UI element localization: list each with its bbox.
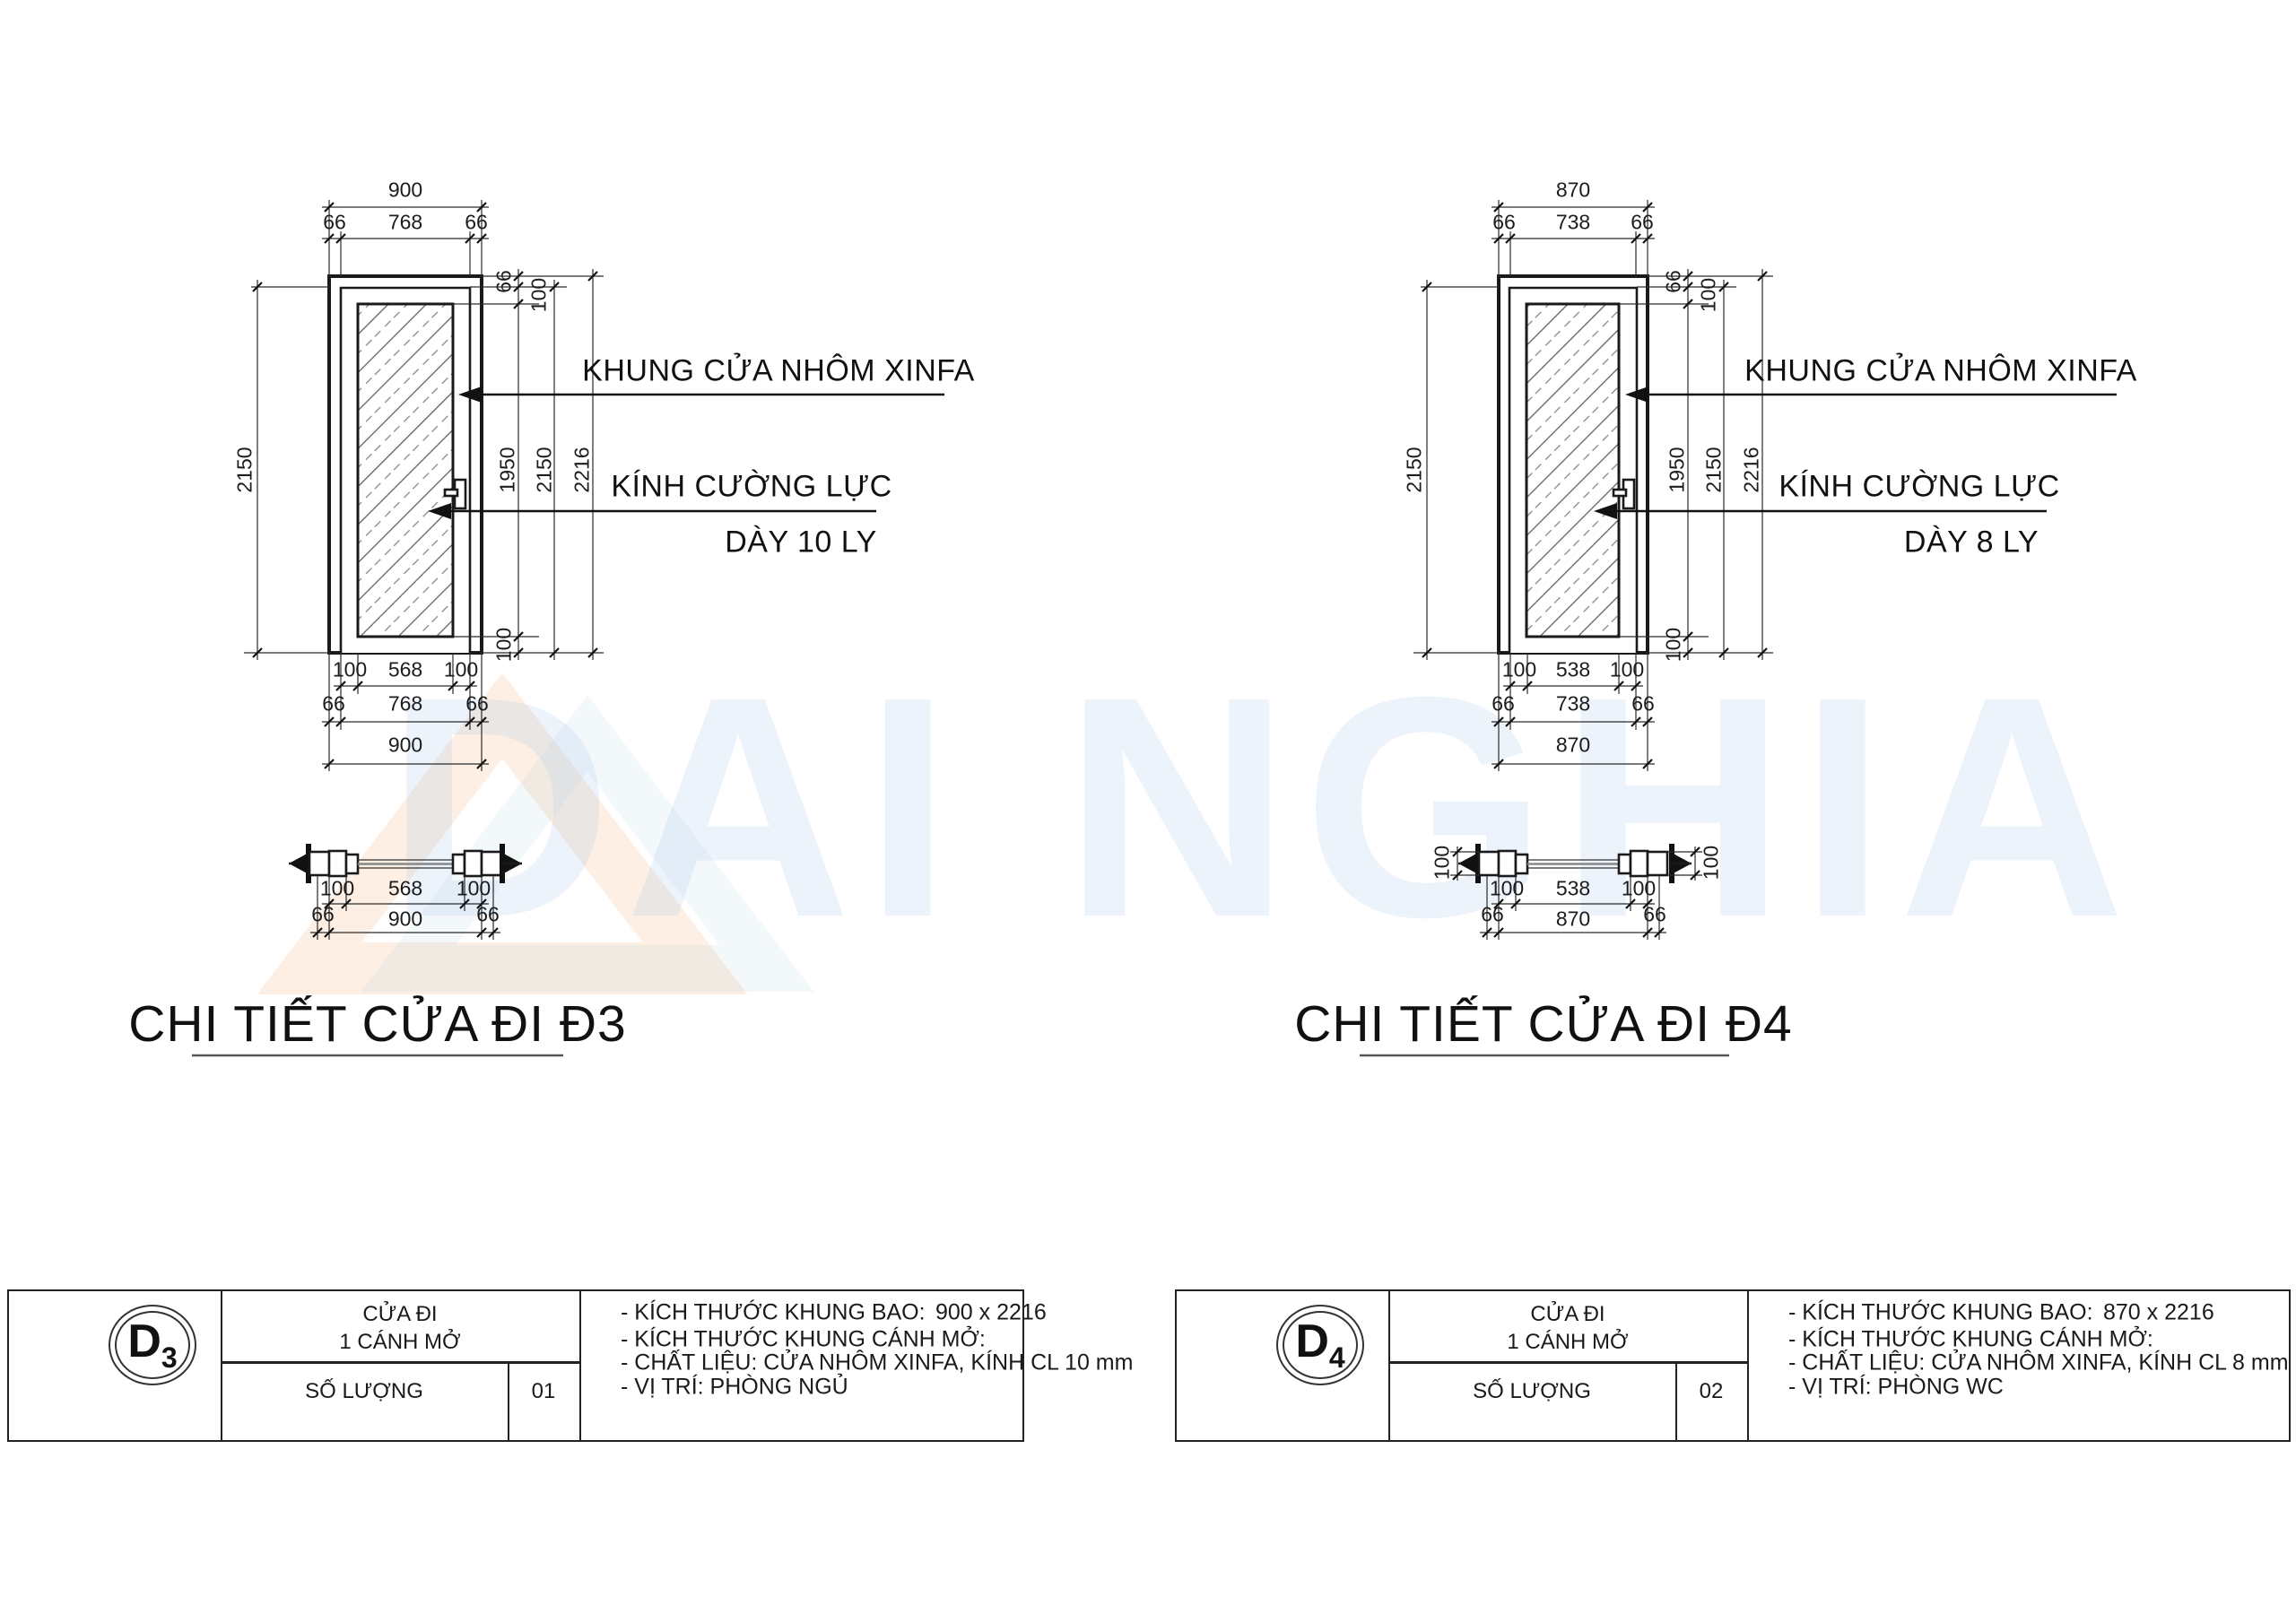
dim-label: 66 (1631, 692, 1655, 716)
note-value: 870 x 2216 (2103, 1300, 2214, 1326)
dim-label: 538 (1556, 658, 1590, 682)
callout-glass-thickness: DÀY 10 LY (725, 525, 877, 560)
note-line: - KÍCH THƯỚC KHUNG CÁNH MỞ: (1788, 1327, 2153, 1353)
dim-label: 100 (1662, 628, 1686, 662)
dim-label: 66 (1631, 211, 1654, 235)
dim-label: 66 (465, 211, 488, 235)
qty-label: SỐ LƯỢNG (1473, 1379, 1591, 1404)
dim-label: 1950 (1665, 447, 1690, 492)
callout-glass-thickness: DÀY 8 LY (1904, 525, 2039, 560)
dim-label: 66 (1481, 903, 1504, 927)
note-line: - CHẤT LIỆU: CỬA NHÔM XINFA, KÍNH CL 8 m… (1788, 1350, 2296, 1376)
dim-label: 66 (1492, 692, 1515, 716)
dim-label: 100 (444, 658, 478, 682)
dim-label: 568 (388, 658, 422, 682)
qty-value: 01 (532, 1379, 556, 1404)
dim-label: 2216 (570, 447, 595, 492)
note-line: - CHẤT LIỆU: CỬA NHÔM XINFA, KÍNH CL 10 … (621, 1350, 1133, 1376)
dim-label: 100 (1502, 658, 1536, 682)
dim-label: 2150 (1702, 447, 1726, 492)
callout-frame: KHUNG CỬA NHÔM XINFA (582, 354, 975, 389)
d3-title: CHI TIẾT CỬA ĐI Đ3 (128, 994, 627, 1054)
note-line: - VỊ TRÍ: PHÒNG NGỦ (621, 1375, 848, 1401)
dim-label: 100 (527, 278, 552, 312)
dim-label: 2150 (1403, 447, 1427, 492)
dim-label: 768 (388, 211, 422, 235)
dim-label: 100 (1697, 278, 1721, 312)
dim-label: 538 (1556, 877, 1590, 901)
d3-title-block: D3 CỬA ĐI 1 CÁNH MỞ SỐ LƯỢNG 01 - KÍCH T… (7, 1289, 1024, 1442)
callout-glass: KÍNH CƯỜNG LỰC (611, 470, 891, 505)
qty-label: SỐ LƯỢNG (305, 1379, 423, 1404)
dim-label: 2150 (233, 447, 257, 492)
dim-label: 100 (1622, 877, 1656, 901)
note-value: 900 x 2216 (935, 1300, 1047, 1326)
door-code: D3 (127, 1318, 177, 1372)
callout-frame: KHUNG CỬA NHÔM XINFA (1744, 354, 2137, 389)
d4-title-block: D4 CỬA ĐI 1 CÁNH MỞ SỐ LƯỢNG 02 - KÍCH T… (1175, 1289, 2291, 1442)
dim-label: 900 (388, 178, 422, 203)
door-code-symbol: D3 (109, 1305, 196, 1385)
dim-label: 100 (320, 877, 354, 901)
dim-label: 66 (323, 211, 346, 235)
door-type: CỬA ĐI (362, 1302, 437, 1327)
dim-label: 66 (1662, 270, 1686, 293)
dim-label: 870 (1556, 907, 1590, 932)
dim-label: 100 (1490, 877, 1524, 901)
dim-label: 100 (492, 628, 517, 662)
watermark-text: DAI NGHIA (386, 628, 2179, 988)
divider (1675, 1361, 1677, 1440)
note-line: - KÍCH THƯỚC KHUNG BAO: (1788, 1300, 2093, 1326)
dim-label: 100 (1610, 658, 1644, 682)
door-leaf-type: 1 CÁNH MỞ (339, 1330, 460, 1355)
callout-glass: KÍNH CƯỜNG LỰC (1779, 470, 2059, 505)
note-line: - VỊ TRÍ: PHÒNG WC (1788, 1375, 2004, 1401)
dim-label: 768 (388, 692, 422, 716)
dim-label: 66 (322, 692, 345, 716)
dim-label: 870 (1556, 178, 1590, 203)
dim-label: 66 (476, 903, 500, 927)
dim-label: 2150 (533, 447, 557, 492)
dim-label: 66 (492, 270, 517, 293)
dim-label: 870 (1556, 733, 1590, 758)
divider (1388, 1361, 1747, 1364)
dim-label: 66 (311, 903, 335, 927)
door-code-symbol: D4 (1276, 1305, 1364, 1385)
dim-label: 66 (465, 692, 489, 716)
dim-label: 738 (1556, 211, 1590, 235)
door-type: CỬA ĐI (1530, 1302, 1605, 1327)
door-code: D4 (1295, 1318, 1344, 1372)
dim-label: 2216 (1740, 447, 1764, 492)
dim-label: 100 (1700, 846, 1724, 880)
divider (508, 1361, 509, 1440)
dim-label: 66 (1643, 903, 1666, 927)
d4-title: CHI TIẾT CỬA ĐI Đ4 (1294, 994, 1793, 1054)
dim-label: 568 (388, 877, 422, 901)
dim-label: 100 (333, 658, 367, 682)
dim-label: 100 (1431, 846, 1455, 880)
dim-label: 100 (457, 877, 491, 901)
dim-label: 1950 (496, 447, 520, 492)
divider (221, 1361, 579, 1364)
dim-label: 900 (388, 907, 422, 932)
dim-label: 900 (388, 733, 422, 758)
door-leaf-type: 1 CÁNH MỞ (1507, 1330, 1628, 1355)
drawing-sheet: DAI NGHIA .o{fill:#fff;stroke:#1a1a1a;st… (0, 0, 2296, 1623)
dim-label: 738 (1556, 692, 1590, 716)
door-notes: - KÍCH THƯỚC KHUNG BAO: 870 x 2216 - KÍC… (1747, 1291, 2289, 1440)
qty-value: 02 (1700, 1379, 1724, 1404)
note-line: - KÍCH THƯỚC KHUNG CÁNH MỞ: (621, 1327, 986, 1353)
dim-label: 66 (1492, 211, 1516, 235)
door-code-ring: D3 (115, 1311, 190, 1379)
divider (221, 1291, 222, 1440)
door-notes: - KÍCH THƯỚC KHUNG BAO: 900 x 2216 - KÍC… (579, 1291, 1022, 1440)
note-line: - KÍCH THƯỚC KHUNG BAO: (621, 1300, 926, 1326)
divider (1388, 1291, 1390, 1440)
door-code-ring: D4 (1283, 1311, 1358, 1379)
